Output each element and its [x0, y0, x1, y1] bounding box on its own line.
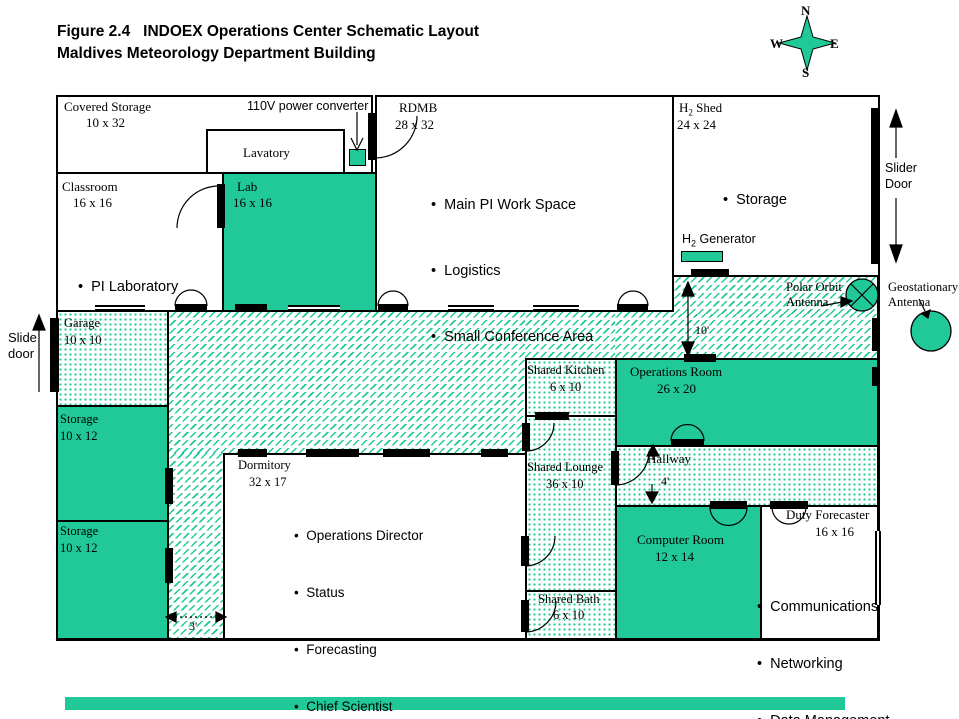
door-corridor-storage-upper [165, 468, 173, 504]
hallway-dim: 4' [661, 474, 669, 489]
dormitory-name: Dormitory [238, 458, 291, 473]
polar-orbit-label-2: Antenna [786, 295, 828, 310]
door-operations-hallway [671, 439, 704, 447]
geostationary-antenna-icon [911, 311, 951, 351]
lab-name: Lab [237, 179, 257, 194]
room-computer [615, 505, 762, 641]
slide-door-label-1: Slide [8, 330, 37, 345]
duty-bullet-1: Communications [757, 598, 889, 617]
door-classroom-corridor [175, 304, 207, 312]
corridor-hatch-under-shed [674, 277, 878, 314]
door-dormitory-bath [521, 600, 529, 632]
door-dormitory-top-4 [481, 449, 508, 457]
power-converter-box [349, 149, 366, 166]
footer-bar [65, 697, 845, 710]
corridor-hatch-narrow [169, 453, 225, 641]
classroom-dims: 16 x 16 [73, 195, 112, 210]
compass-west-label: W [770, 36, 783, 52]
hallway-name: Hallway [647, 451, 691, 466]
h2-generator-box [681, 251, 723, 262]
rdmb-bullet-1: Main PI Work Space [431, 194, 593, 216]
compass-star-icon [779, 16, 835, 70]
garage-dims: 10 x 10 [64, 333, 102, 348]
door-corridor-east [872, 318, 880, 351]
slide-door-arrow [33, 315, 45, 392]
shared-kitchen-name: Shared Kitchen [527, 363, 604, 378]
rdmb-bullet-3: Small Conference Area [431, 326, 593, 348]
door-kitchen-lounge [535, 412, 569, 420]
garage-name: Garage [64, 316, 100, 331]
power-converter-label: 110V power converter [247, 99, 368, 114]
shared-bath-dims: 6 x 10 [553, 608, 584, 623]
lab-dims: 16 x 16 [233, 195, 272, 210]
duty-bullet-2: Networking [757, 655, 889, 674]
geostationary-label-1: Geostationary [888, 280, 958, 295]
slide-door-label-2: door [8, 346, 34, 361]
door-operations-north [684, 354, 716, 362]
polar-orbit-label-1: Polar Orbit [786, 280, 842, 295]
dormitory-bullet-2: Status [294, 583, 423, 602]
door-shed-corridor [691, 269, 729, 277]
corridor-dim-10: 10' [695, 323, 709, 338]
shared-kitchen-dims: 6 x 10 [550, 380, 581, 395]
shared-bath-name: Shared Bath [538, 592, 599, 607]
h2-generator-label: H2 Generator [682, 232, 756, 252]
dormitory-bullet-1: Operations Director [294, 526, 423, 545]
computer-room-dims: 12 x 14 [655, 549, 694, 564]
duty-forecaster-dims: 16 x 16 [815, 524, 854, 539]
duty-forecaster-name: Duty Forecaster [786, 507, 869, 522]
dormitory-dims: 32 x 17 [249, 475, 287, 490]
duty-forecaster-bullet-list: Communications Networking Data Managemen… [757, 560, 889, 719]
storage-upper-dims: 10 x 12 [60, 429, 98, 444]
h2-shed-dims: 24 x 24 [677, 117, 716, 132]
lavatory-name: Lavatory [243, 145, 290, 160]
door-dormitory-lounge [521, 536, 529, 566]
shared-lounge-dims: 36 x 10 [546, 477, 584, 492]
rdmb-bullet-2: Logistics [431, 260, 593, 282]
room-shared-lounge [525, 415, 617, 592]
compass-north-label: N [801, 3, 810, 19]
storage-lower-dims: 10 x 12 [60, 541, 98, 556]
classroom-name: Classroom [62, 179, 118, 194]
door-classroom-lab [217, 184, 225, 228]
h2-shed-bullet-1: Storage [723, 189, 787, 211]
figure-title-line1: Figure 2.4 INDOEX Operations Center Sche… [57, 23, 479, 41]
covered-storage-name: Covered Storage [64, 99, 151, 114]
slider-door-bar [871, 108, 880, 264]
door-storage-rdmb [368, 113, 376, 160]
figure-title-line2: Maldives Meteorology Department Building [57, 45, 376, 63]
corridor-dim-3: 3' [189, 619, 197, 634]
door-corridor-storage-lower [165, 548, 173, 583]
covered-storage-dims: 10 x 32 [86, 115, 125, 130]
garage-slide-door-bar [50, 318, 59, 392]
door-dormitory-top-2 [306, 449, 359, 457]
slider-door-label-1: Slider [885, 161, 917, 176]
door-operations-east [872, 367, 880, 386]
floor-plan: Figure 2.4 INDOEX Operations Center Sche… [0, 0, 959, 719]
door-dormitory-top-1 [238, 449, 267, 457]
corridor-hatch-above-ops [615, 312, 878, 360]
window-lab [288, 305, 340, 311]
door-lab-corridor [235, 304, 267, 312]
slider-door-label-2: Door [885, 177, 912, 192]
dormitory-bullet-3: Forecasting [294, 640, 423, 659]
storage-upper-name: Storage [60, 412, 98, 427]
shared-lounge-name: Shared Lounge [527, 460, 603, 475]
dormitory-bullet-4: Chief Scientist [294, 697, 423, 716]
duty-bullet-3: Data Management [757, 712, 889, 719]
dormitory-bullet-list: Operations Director Status Forecasting C… [294, 488, 423, 719]
door-hallway-computer [710, 501, 747, 509]
compass-south-label: S [802, 65, 809, 81]
door-rdmb-corridor-1 [378, 304, 408, 312]
door-lounge-west [522, 423, 530, 451]
rdmb-bullet-list: Main PI Work Space Logistics Small Confe… [431, 150, 593, 392]
rdmb-name: RDMB [399, 100, 437, 115]
rdmb-dims: 28 x 32 [395, 117, 434, 132]
geostationary-label-2: Antenna [888, 295, 930, 310]
door-rdmb-corridor-2 [617, 304, 648, 312]
compass-east-label: E [830, 36, 839, 52]
operations-room-dims: 26 x 20 [657, 381, 696, 396]
storage-lower-name: Storage [60, 524, 98, 539]
classroom-bullet-1: PI Laboratory [78, 276, 178, 298]
door-dormitory-top-3 [383, 449, 430, 457]
operations-room-name: Operations Room [630, 364, 722, 379]
computer-room-name: Computer Room [637, 532, 724, 547]
door-lounge-hallway [611, 451, 619, 485]
